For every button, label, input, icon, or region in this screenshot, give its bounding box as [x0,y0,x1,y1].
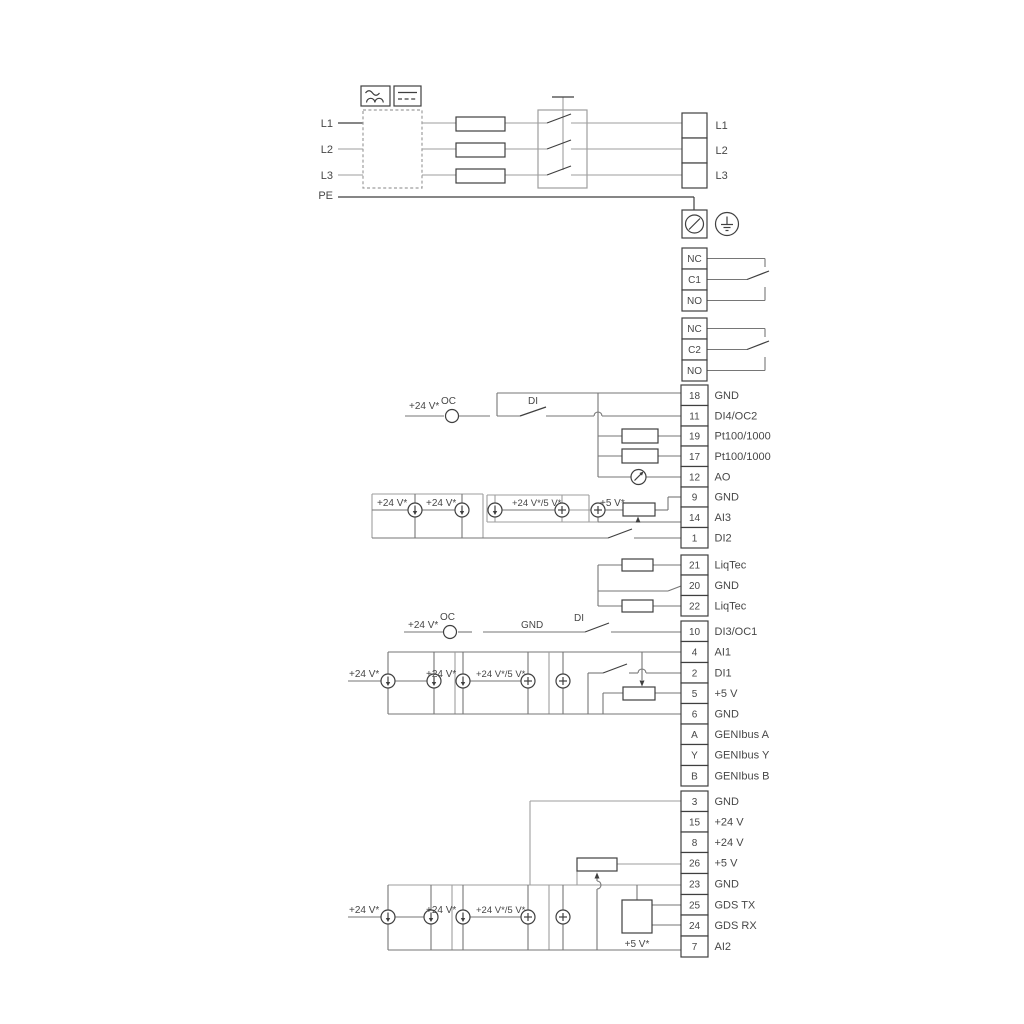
relay-terminal-id: NC [687,254,701,265]
relay-terminal-id: NO [687,366,702,377]
mains-input-label: PE [318,190,333,202]
terminal-label: AO [715,471,731,483]
terminal-number: 25 [689,900,701,911]
wiring-diagram: L1L2L3L1L2L3PENCC1NONCC2NO18GND11DI4/OC2… [0,0,1024,1024]
potentiometer-icon [623,687,655,700]
annotation-s3_t1: +24 V* [349,669,379,680]
terminal-label: LiqTec [715,560,747,572]
relay-terminal-id: NO [687,296,702,307]
terminal-label: +24 V [715,816,745,828]
terminal-label: DI2 [715,532,732,544]
annotation-s3_gnd: GND [521,620,543,631]
mains-terminal-cell [682,163,707,188]
fuse-icon [456,117,505,131]
terminal-label: AI2 [715,941,732,953]
switch-blade [547,140,571,149]
potentiometer-icon [623,503,655,516]
annotation-s1_5v: +5 V* [600,498,625,509]
annotation-s3_di: DI [574,613,584,624]
switch-blade [547,114,571,123]
terminal-number: 26 [689,859,701,870]
switch-blade [585,623,609,632]
terminal-number: Y [691,751,698,762]
annotation-s3_supply: +24 V* [408,620,438,631]
annotation-s4_t2: +24 V* [426,905,456,916]
terminal-label: +24 V [715,837,745,849]
terminal-number: 20 [689,581,701,592]
switch-blade [747,271,769,280]
terminal-label: AI1 [715,647,732,659]
terminal-label: GND [715,796,740,808]
annotation-s4_t3: +24 V*/5 V* [476,905,526,916]
switch-blade [608,529,632,538]
terminal-number: 5 [692,689,698,700]
terminal-label: +5 V [715,858,739,870]
open-collector-icon [446,410,459,423]
annotation-s3_oc: OC [440,612,455,623]
terminal-number: 7 [692,942,698,953]
terminal-number: 18 [689,391,701,402]
terminal-number: A [691,730,698,741]
annotation-s1_t3: +24 V*/5 V* [512,498,562,509]
terminal-label: LiqTec [715,600,747,612]
annotation-s1_supply: +24 V* [409,401,439,412]
terminal-number: 24 [689,921,701,932]
terminal-number: 14 [689,513,701,524]
terminal-label: DI1 [715,667,732,679]
potentiometer-wiper [595,873,600,879]
terminal-number: 6 [692,709,698,720]
terminal-number: 22 [689,601,701,612]
fuse-icon [456,143,505,157]
switch-blade [547,166,571,175]
potentiometer-icon [577,858,617,871]
terminal-label: GENIbus A [715,729,770,741]
terminal-label: GDS RX [715,920,758,932]
ac-sine-icon [361,86,390,106]
terminal-label: GND [715,580,740,592]
terminal-number: 3 [692,797,698,808]
terminal-number: 2 [692,668,698,679]
terminal-label: GND [715,879,740,891]
mains-terminal-label: L3 [716,170,728,182]
terminal-label: GND [715,492,740,504]
open-collector-icon [444,626,457,639]
mains-terminal-cell [682,113,707,138]
annotation-s1_di: DI [528,396,538,407]
resistor-icon [622,429,658,443]
terminal-label: GENIbus Y [715,750,770,762]
mains-input-label: L3 [321,170,333,182]
terminal-label: DI3/OC1 [715,626,758,638]
terminal-number: 19 [689,432,701,443]
terminal-label: Pt100/1000 [715,451,771,463]
terminal-number: 8 [692,838,698,849]
dc-line-icon [394,86,421,106]
terminal-label: Pt100/1000 [715,431,771,443]
annotation-s4_5v: +5 V* [625,939,650,950]
terminal-number: 21 [689,561,701,572]
switch-blade [747,341,769,350]
emc-filter-box [363,110,422,188]
resistor-icon [622,449,658,463]
mains-input-label: L2 [321,144,333,156]
annotation-s3_t3: +24 V*/5 V* [476,669,526,680]
terminal-number: 10 [689,627,701,638]
annotation-s1_t1: +24 V* [377,498,407,509]
wire [668,586,681,591]
mains-terminal-cell [682,138,707,163]
terminal-number: 1 [692,533,698,544]
terminal-number: 23 [689,880,701,891]
potentiometer-wiper [636,517,641,523]
annotation-s3_t2: +24 V* [426,669,456,680]
relay-terminal-id: C1 [688,275,701,286]
mains-input-label: L1 [321,118,333,130]
mains-terminal-label: L2 [716,145,728,157]
wiring-diagram-canvas: L1L2L3L1L2L3PENCC1NONCC2NO18GND11DI4/OC2… [0,0,1024,1024]
terminal-label: +5 V [715,688,739,700]
annotation-s1_t2: +24 V* [426,498,456,509]
terminal-label: GDS TX [715,899,756,911]
terminal-label: AI3 [715,512,732,524]
terminal-label: DI4/OC2 [715,410,758,422]
potentiometer-wiper [640,681,645,687]
terminal-number: B [691,771,698,782]
switch-blade [603,664,627,673]
terminal-number: 4 [692,648,698,659]
terminal-number: 11 [689,411,700,422]
gds-sensor-box [622,900,652,933]
terminal-number: 9 [692,493,698,504]
mains-terminal-label: L1 [716,120,728,132]
terminal-label: GND [715,390,740,402]
terminal-number: 17 [689,452,701,463]
terminal-label: GND [715,708,740,720]
terminal-number: 15 [689,817,701,828]
terminal-number: 12 [689,472,701,483]
fuse-icon [456,169,505,183]
annotation-s1_oc: OC [441,396,456,407]
relay-terminal-id: NC [687,324,701,335]
relay-terminal-id: C2 [688,345,701,356]
resistor-icon [622,600,653,612]
annotation-s4_t1: +24 V* [349,905,379,916]
switch-blade [520,407,546,416]
terminal-label: GENIbus B [715,770,770,782]
resistor-icon [622,559,653,571]
